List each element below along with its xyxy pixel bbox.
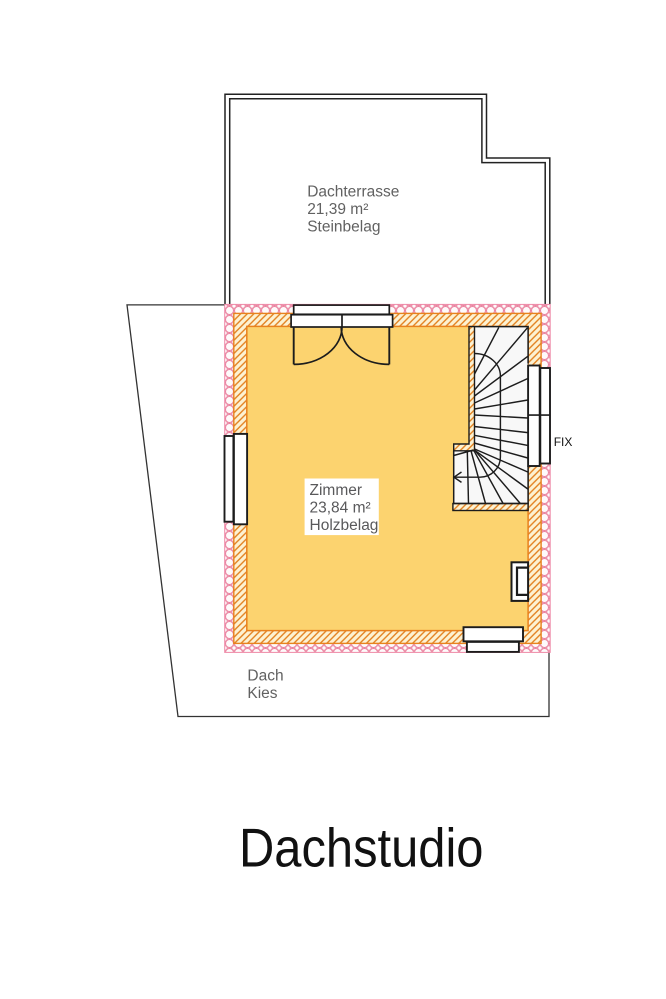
svg-text:Dach: Dach	[247, 667, 283, 684]
svg-text:Steinbelag: Steinbelag	[307, 219, 380, 236]
svg-text:21,39 m²: 21,39 m²	[307, 201, 368, 218]
svg-text:Dachstudio: Dachstudio	[239, 817, 484, 879]
svg-text:23,84 m²: 23,84 m²	[310, 500, 371, 517]
svg-text:Holzbelag: Holzbelag	[310, 517, 379, 534]
svg-text:FIX: FIX	[554, 435, 573, 449]
svg-text:Zimmer: Zimmer	[310, 482, 363, 499]
svg-text:Dachterrasse: Dachterrasse	[307, 183, 399, 200]
svg-text:Kies: Kies	[247, 685, 277, 702]
